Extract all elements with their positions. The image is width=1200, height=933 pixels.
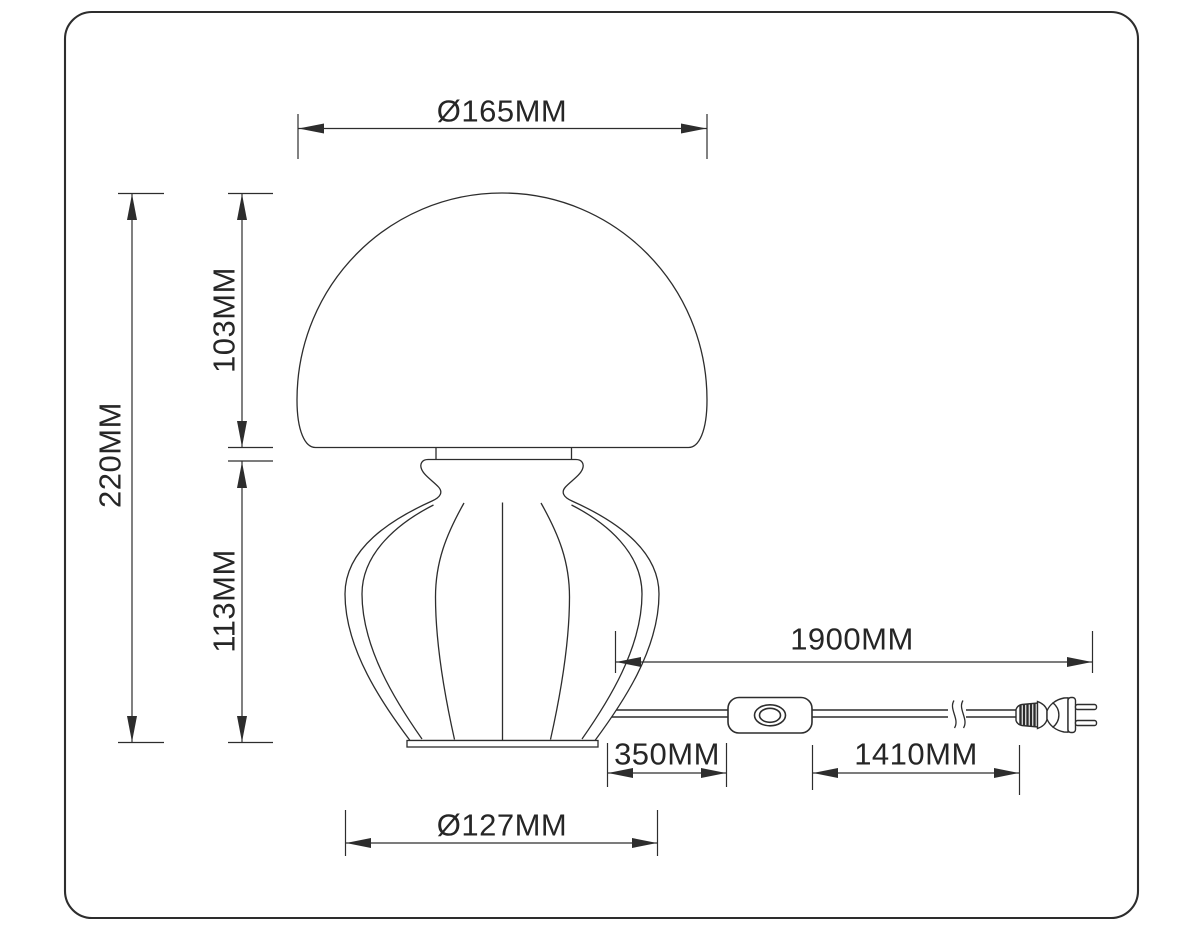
label-cord-total-length: 1900MM — [790, 624, 914, 655]
label-base-diameter: Ø127MM — [437, 810, 567, 841]
drawing-border — [65, 12, 1138, 918]
label-cord-lamp-to-switch: 350MM — [614, 739, 720, 770]
plug-face — [1068, 698, 1076, 733]
label-shade-height: 103MM — [209, 267, 240, 373]
label-base-height: 113MM — [209, 549, 240, 653]
technical-drawing-canvas — [0, 0, 1200, 933]
plug-prong-bottom — [1076, 721, 1097, 726]
plug-body — [1047, 698, 1068, 732]
lamp-base-outline — [345, 460, 659, 748]
label-shade-diameter: Ø165MM — [437, 96, 567, 127]
lamp-dimension-diagram: Ø165MM 220MM 103MM 113MM 1900MM 350MM 14… — [0, 0, 1200, 933]
plug-prong-top — [1076, 705, 1097, 710]
shade-dome — [297, 193, 707, 448]
cord-switch — [728, 698, 812, 734]
power-plug — [1016, 698, 1097, 733]
label-total-height: 220MM — [95, 402, 126, 508]
lamp-shade-outline — [297, 193, 707, 460]
base-foot-plate — [407, 741, 598, 748]
label-cord-switch-to-plug: 1410MM — [854, 739, 978, 770]
cord-break-symbol — [948, 699, 966, 730]
plug-flange — [1038, 702, 1048, 729]
